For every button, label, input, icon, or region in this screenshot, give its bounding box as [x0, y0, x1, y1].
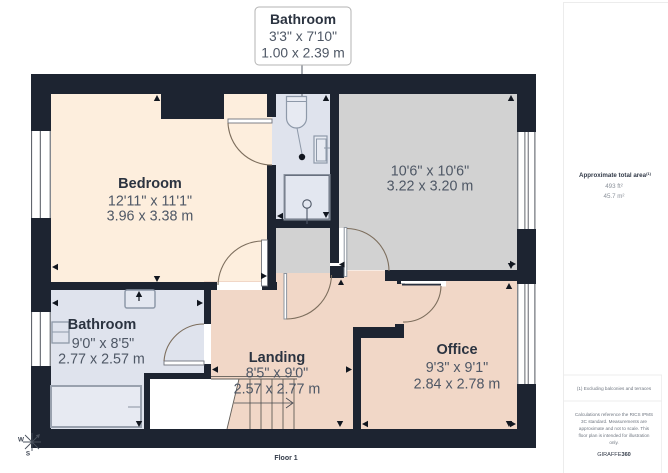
svg-text:2.77 x 2.57 m: 2.77 x 2.57 m — [58, 352, 145, 368]
svg-text:12'11" x 11'1": 12'11" x 11'1" — [108, 194, 192, 210]
svg-text:(1) Excluding balconies and te: (1) Excluding balconies and terraces — [577, 386, 652, 391]
svg-text:10'6" x 10'6": 10'6" x 10'6" — [391, 164, 469, 180]
svg-text:Calculations reference the RIC: Calculations reference the RICS IPMS — [575, 412, 653, 417]
svg-text:Bathroom: Bathroom — [270, 11, 336, 27]
svg-text:W: W — [18, 437, 24, 444]
svg-text:Approximate total area(1): Approximate total area(1) — [579, 171, 652, 179]
svg-text:Bedroom: Bedroom — [118, 176, 182, 192]
svg-text:floor plan is intended for ill: floor plan is intended for illustration — [579, 433, 650, 438]
svg-text:Floor 1: Floor 1 — [274, 455, 297, 462]
svg-text:2.57 x 2.77 m: 2.57 x 2.77 m — [234, 382, 321, 398]
svg-text:Office: Office — [436, 342, 477, 358]
svg-text:9'3" x 9'1": 9'3" x 9'1" — [426, 360, 489, 376]
svg-text:45.7 m²: 45.7 m² — [604, 193, 625, 200]
svg-text:8'5" x 9'0": 8'5" x 9'0" — [246, 366, 309, 382]
svg-text:GIRAFFE360: GIRAFFE360 — [597, 452, 631, 458]
svg-text:2.84 x 2.78 m: 2.84 x 2.78 m — [414, 377, 501, 393]
svg-text:Bathroom: Bathroom — [68, 317, 136, 333]
svg-text:493 ft²: 493 ft² — [605, 183, 623, 190]
svg-text:S: S — [26, 451, 30, 458]
svg-text:3C standard. Measurements are: 3C standard. Measurements are — [581, 419, 647, 424]
svg-text:Landing: Landing — [249, 350, 305, 366]
svg-text:3'3" x 7'10": 3'3" x 7'10" — [269, 29, 337, 44]
svg-text:3.96 x 3.38 m: 3.96 x 3.38 m — [107, 209, 194, 225]
svg-text:only.: only. — [609, 440, 618, 445]
svg-text:approximate and not to scale.: approximate and not to scale. This — [579, 426, 650, 431]
svg-text:9'0" x 8'5": 9'0" x 8'5" — [72, 336, 135, 352]
svg-text:3.22 x 3.20 m: 3.22 x 3.20 m — [387, 179, 474, 195]
svg-text:1.00 x 2.39 m: 1.00 x 2.39 m — [261, 46, 345, 61]
